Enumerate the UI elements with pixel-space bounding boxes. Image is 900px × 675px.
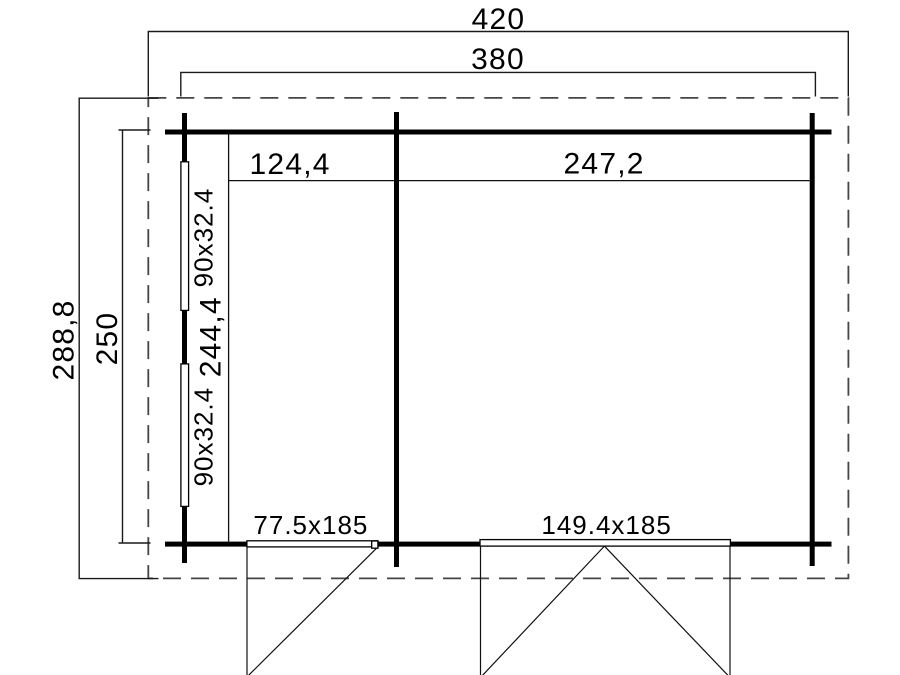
svg-text:90x32.4: 90x32.4	[188, 387, 218, 487]
svg-text:250: 250	[91, 312, 124, 366]
svg-text:149.4x185: 149.4x185	[541, 510, 671, 540]
svg-text:420: 420	[472, 3, 526, 36]
svg-text:288,8: 288,8	[47, 299, 80, 380]
svg-text:124,4: 124,4	[250, 148, 331, 181]
svg-text:380: 380	[471, 43, 525, 76]
svg-text:77.5x185: 77.5x185	[253, 510, 368, 540]
svg-text:244,4: 244,4	[194, 296, 227, 377]
svg-text:247,2: 247,2	[564, 148, 645, 181]
svg-text:90x32.4: 90x32.4	[188, 188, 218, 288]
